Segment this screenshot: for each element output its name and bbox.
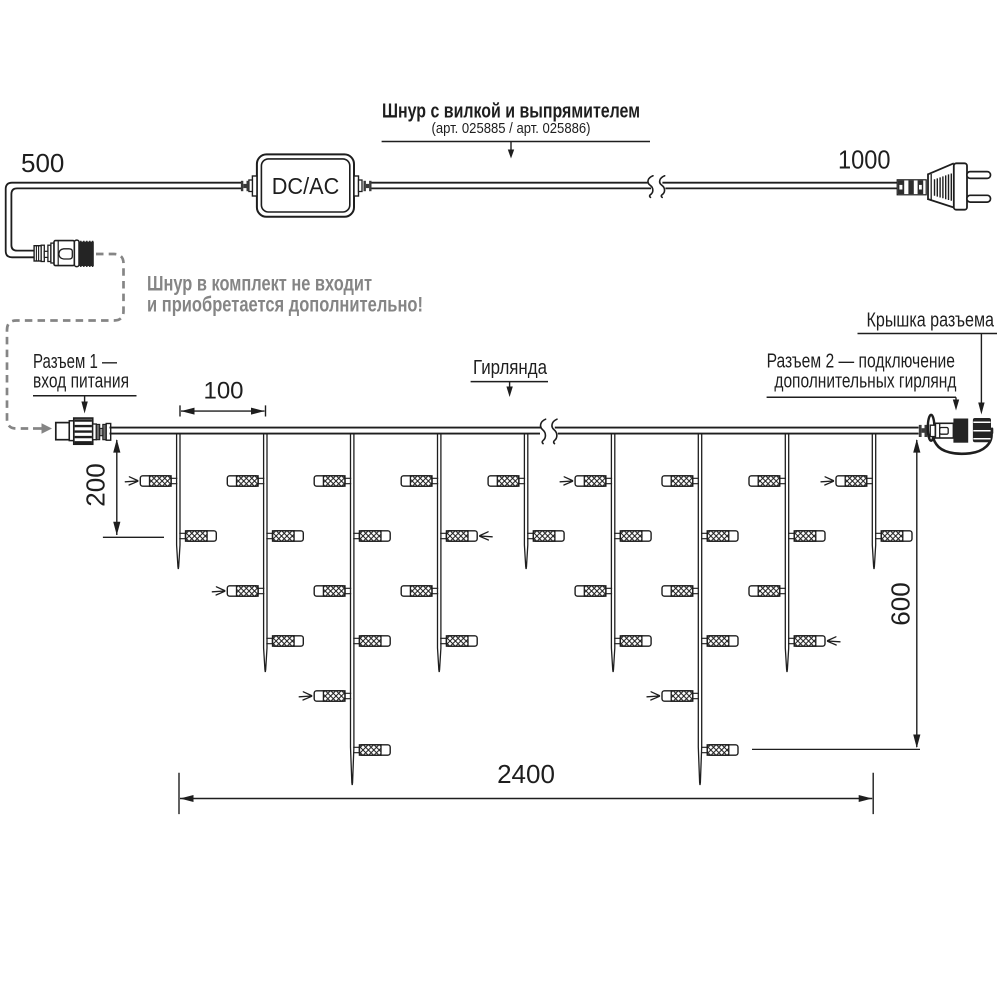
svg-text:200: 200 bbox=[81, 463, 111, 506]
svg-text:500: 500 bbox=[21, 148, 64, 178]
svg-text:Шнур в комплект не входит: Шнур в комплект не входит bbox=[147, 273, 372, 296]
svg-text:2400: 2400 bbox=[497, 759, 555, 789]
svg-text:100: 100 bbox=[203, 378, 243, 405]
svg-text:1000: 1000 bbox=[838, 145, 891, 175]
svg-text:вход питания: вход питания bbox=[33, 371, 129, 393]
svg-text:Шнур с вилкой и выпрямителем: Шнур с вилкой и выпрямителем bbox=[382, 101, 640, 123]
svg-text:Гирлянда: Гирлянда bbox=[473, 357, 548, 379]
svg-text:DC/AC: DC/AC bbox=[272, 173, 340, 199]
svg-text:и приобретается дополнительно!: и приобретается дополнительно! bbox=[147, 294, 423, 317]
svg-text:600: 600 bbox=[885, 582, 915, 625]
svg-text:(арт. 025885 / арт. 025886): (арт. 025885 / арт. 025886) bbox=[432, 121, 591, 137]
svg-text:дополнительных гирлянд: дополнительных гирлянд bbox=[774, 371, 956, 393]
svg-text:Крышка разъема: Крышка разъема bbox=[867, 310, 995, 332]
svg-text:Разъем 2 — подключение: Разъем 2 — подключение bbox=[767, 351, 955, 373]
